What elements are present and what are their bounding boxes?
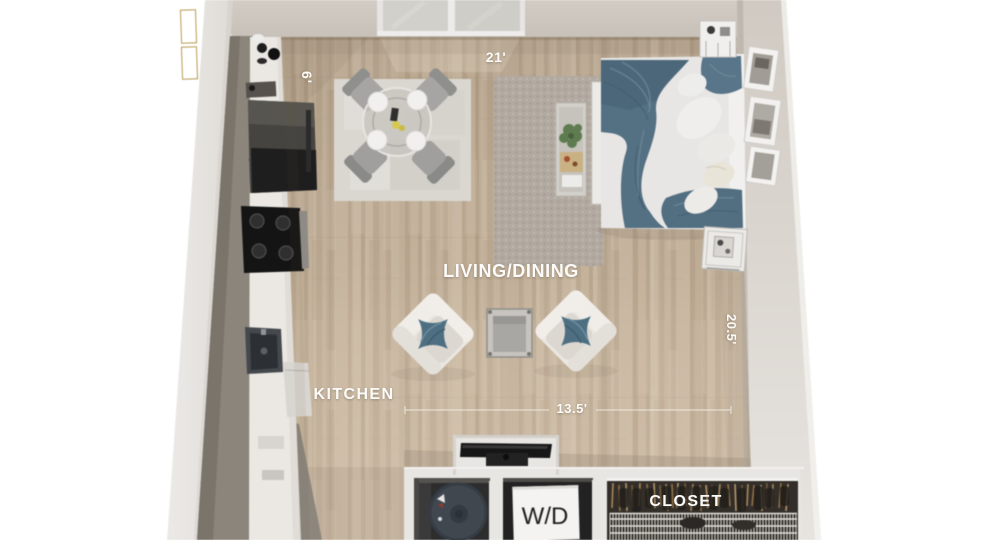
svg-text:20.5': 20.5' (724, 314, 739, 345)
svg-text:KITCHEN: KITCHEN (314, 386, 395, 403)
svg-text:W/D: W/D (522, 503, 569, 530)
svg-text:6': 6' (299, 71, 315, 84)
svg-text:LIVING/DINING: LIVING/DINING (443, 261, 579, 281)
svg-text:CLOSET: CLOSET (649, 493, 722, 510)
svg-text:13.5': 13.5' (557, 401, 588, 416)
svg-text:21': 21' (486, 49, 506, 65)
